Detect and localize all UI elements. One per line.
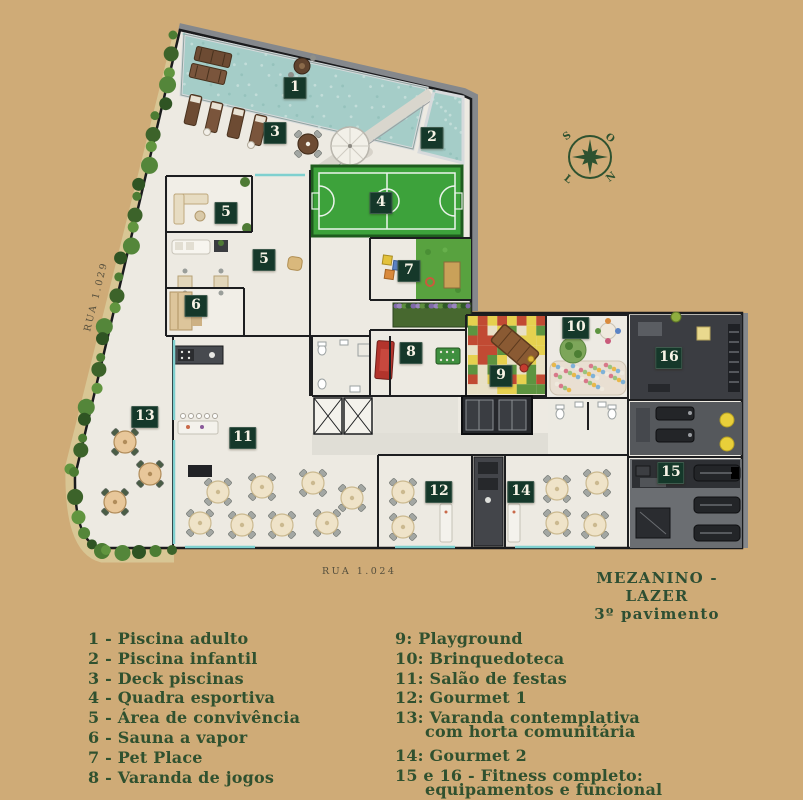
plan-number-badge: 12 bbox=[425, 481, 452, 503]
legend-item: 11: Salão de festas bbox=[395, 669, 662, 689]
legend-item: 13: Varanda contemplativacom horta comun… bbox=[395, 708, 662, 739]
plan-number-badge: 4 bbox=[370, 192, 393, 214]
elevator-core bbox=[462, 396, 532, 434]
legend-item: 5 - Área de convivência bbox=[88, 708, 300, 728]
plan-title-line2: 3º pavimento bbox=[570, 605, 744, 623]
legend-item: 12: Gourmet 1 bbox=[395, 688, 662, 708]
street-label-bottom: RUA 1.024 bbox=[322, 566, 396, 577]
legend-item: 2 - Piscina infantil bbox=[88, 649, 300, 669]
plan-number-badge: 2 bbox=[421, 127, 444, 149]
legend-item: 7 - Pet Place bbox=[88, 748, 300, 768]
legend-item: 14: Gourmet 2 bbox=[395, 746, 662, 766]
plan-title-line1: MEZANINO - LAZER bbox=[570, 569, 744, 605]
compass-icon: S O L N bbox=[561, 130, 618, 186]
plan-number-badge: 11 bbox=[229, 427, 256, 449]
compass-letter-n: N bbox=[604, 170, 618, 184]
plan-number-badge: 9 bbox=[490, 365, 513, 387]
floor-plan-page: RUA 1.029 RUA 1.024 S O L N 123455678910… bbox=[0, 0, 803, 800]
legend-item: 4 - Quadra esportiva bbox=[88, 688, 300, 708]
legend-item: 3 - Deck piscinas bbox=[88, 669, 300, 689]
legend-item: 10: Brinquedoteca bbox=[395, 649, 662, 669]
legend-item: 15 e 16 - Fitness completo:equipamentos … bbox=[395, 766, 662, 797]
legend-item: 8 - Varanda de jogos bbox=[88, 768, 300, 788]
plan-number-badge: 14 bbox=[507, 481, 534, 503]
plan-number-badge: 5 bbox=[215, 202, 238, 224]
plan-number-badge: 5 bbox=[253, 249, 276, 271]
legend-item: 1 - Piscina adulto bbox=[88, 629, 300, 649]
plan-number-badge: 7 bbox=[398, 260, 421, 282]
legend-item: 6 - Sauna a vapor bbox=[88, 728, 300, 748]
vertical-garden bbox=[393, 303, 471, 327]
plan-number-badge: 1 bbox=[284, 77, 307, 99]
plan-number-badge: 15 bbox=[657, 462, 684, 484]
legend-column-right: 9: Playground10: Brinquedoteca11: Salão … bbox=[395, 629, 662, 800]
legend-item: 9: Playground bbox=[395, 629, 662, 649]
compass-letter-s: S bbox=[561, 130, 573, 143]
plan-number-badge: 13 bbox=[131, 406, 158, 428]
plan-number-badge: 10 bbox=[562, 317, 589, 339]
plan-number-badge: 3 bbox=[264, 122, 287, 144]
plan-number-badge: 8 bbox=[400, 342, 423, 364]
plan-number-badge: 16 bbox=[655, 347, 682, 369]
plan-title: MEZANINO - LAZER 3º pavimento bbox=[570, 569, 744, 623]
compass-letter-l: L bbox=[562, 173, 574, 186]
legend-column-left: 1 - Piscina adulto2 - Piscina infantil3 … bbox=[88, 629, 300, 787]
plan-number-badge: 6 bbox=[185, 295, 208, 317]
